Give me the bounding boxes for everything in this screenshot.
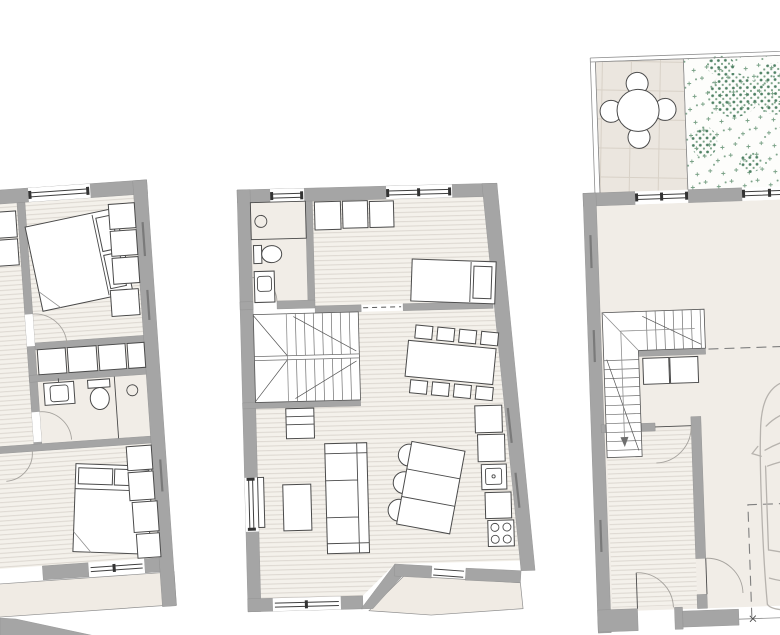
upper-floor-plan	[0, 180, 176, 620]
floor-plan-sheet: Architectural floor plans - three stacke…	[0, 0, 780, 635]
single-bed	[411, 259, 496, 304]
cooktop	[488, 520, 515, 547]
closet-row	[314, 200, 394, 230]
ground-floor-plan	[578, 50, 780, 633]
u-staircase	[253, 312, 360, 403]
sideboard	[286, 408, 315, 439]
floor-plan-drawing: Architectural floor plans - three stacke…	[0, 0, 780, 635]
straight-sofa	[325, 443, 370, 554]
washbasin	[254, 271, 275, 303]
coffee-table	[283, 484, 312, 531]
roof-terrace	[590, 51, 780, 195]
tv	[258, 477, 265, 527]
toilet	[253, 245, 281, 264]
middle-floor-plan	[237, 182, 536, 619]
kitchen-sink	[481, 464, 507, 490]
hall-cabinets	[643, 356, 699, 384]
